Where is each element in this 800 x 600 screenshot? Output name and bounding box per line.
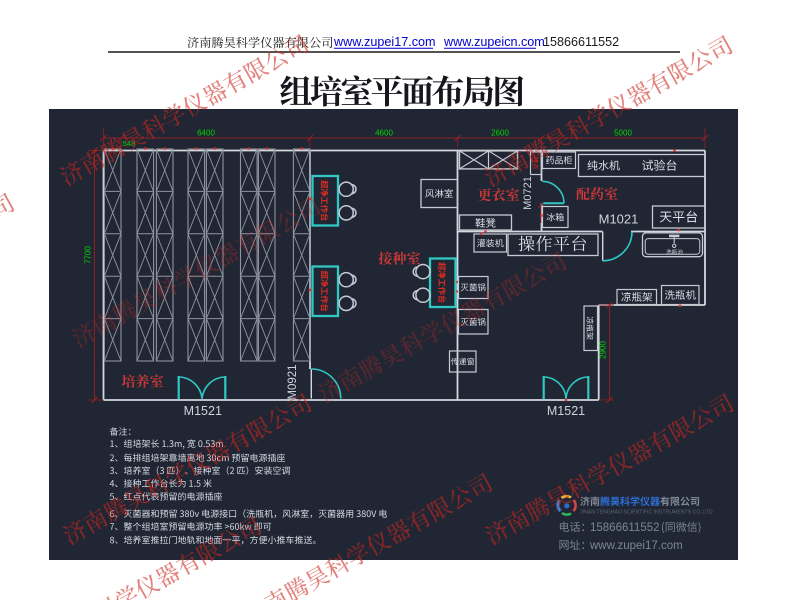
- svg-text:M1521: M1521: [184, 404, 222, 418]
- svg-text:7700: 7700: [84, 246, 93, 264]
- svg-text:M0721: M0721: [522, 176, 534, 210]
- svg-text:M1521: M1521: [547, 404, 585, 418]
- svg-text:JINAN TENGHAO SCIENTIFIC INSTR: JINAN TENGHAO SCIENTIFIC INSTRUMENTS CO.…: [580, 510, 713, 516]
- svg-text:www.zupei17.com: www.zupei17.com: [333, 35, 436, 49]
- svg-text:6400: 6400: [197, 129, 215, 138]
- svg-text:2600: 2600: [491, 129, 509, 138]
- svg-text:15866611552: 15866611552: [590, 522, 660, 534]
- svg-text:M0921: M0921: [287, 364, 299, 399]
- svg-text:15866611552: 15866611552: [543, 35, 619, 49]
- svg-text:www.zupeicn.com: www.zupeicn.com: [443, 35, 545, 49]
- svg-text:5000: 5000: [614, 129, 632, 138]
- svg-text:www.zupei17.com: www.zupei17.com: [589, 540, 683, 552]
- svg-text:4600: 4600: [375, 129, 393, 138]
- svg-text:M1021: M1021: [599, 212, 639, 227]
- svg-text:2900: 2900: [599, 341, 608, 359]
